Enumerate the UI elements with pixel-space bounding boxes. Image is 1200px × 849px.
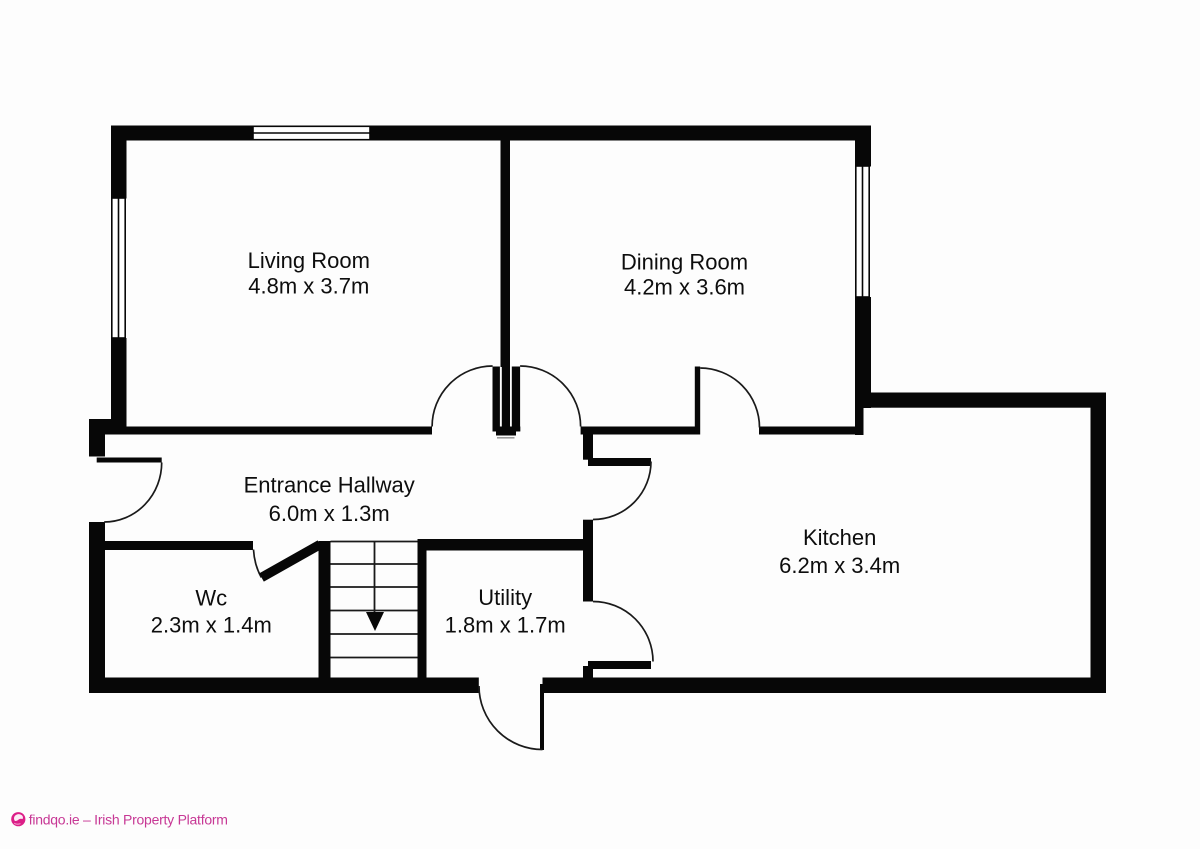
svg-text:Living Room: Living Room: [248, 248, 370, 273]
svg-text:Entrance Hallway: Entrance Hallway: [244, 472, 415, 497]
svg-text:6.2m x 3.4m: 6.2m x 3.4m: [779, 553, 900, 578]
svg-text:Utility: Utility: [478, 585, 532, 610]
svg-text:Wc: Wc: [195, 585, 227, 610]
svg-text:Dining Room: Dining Room: [621, 249, 748, 274]
svg-text:2.3m x 1.4m: 2.3m x 1.4m: [151, 612, 272, 637]
svg-text:4.2m x 3.6m: 4.2m x 3.6m: [624, 274, 745, 299]
svg-text:Kitchen: Kitchen: [803, 525, 876, 550]
svg-text:findqo.ie – Irish Property Pla: findqo.ie – Irish Property Platform: [29, 812, 228, 828]
svg-text:1.8m x 1.7m: 1.8m x 1.7m: [445, 612, 566, 637]
svg-text:6.0m x 1.3m: 6.0m x 1.3m: [269, 501, 390, 526]
svg-text:4.8m x 3.7m: 4.8m x 3.7m: [248, 274, 369, 299]
